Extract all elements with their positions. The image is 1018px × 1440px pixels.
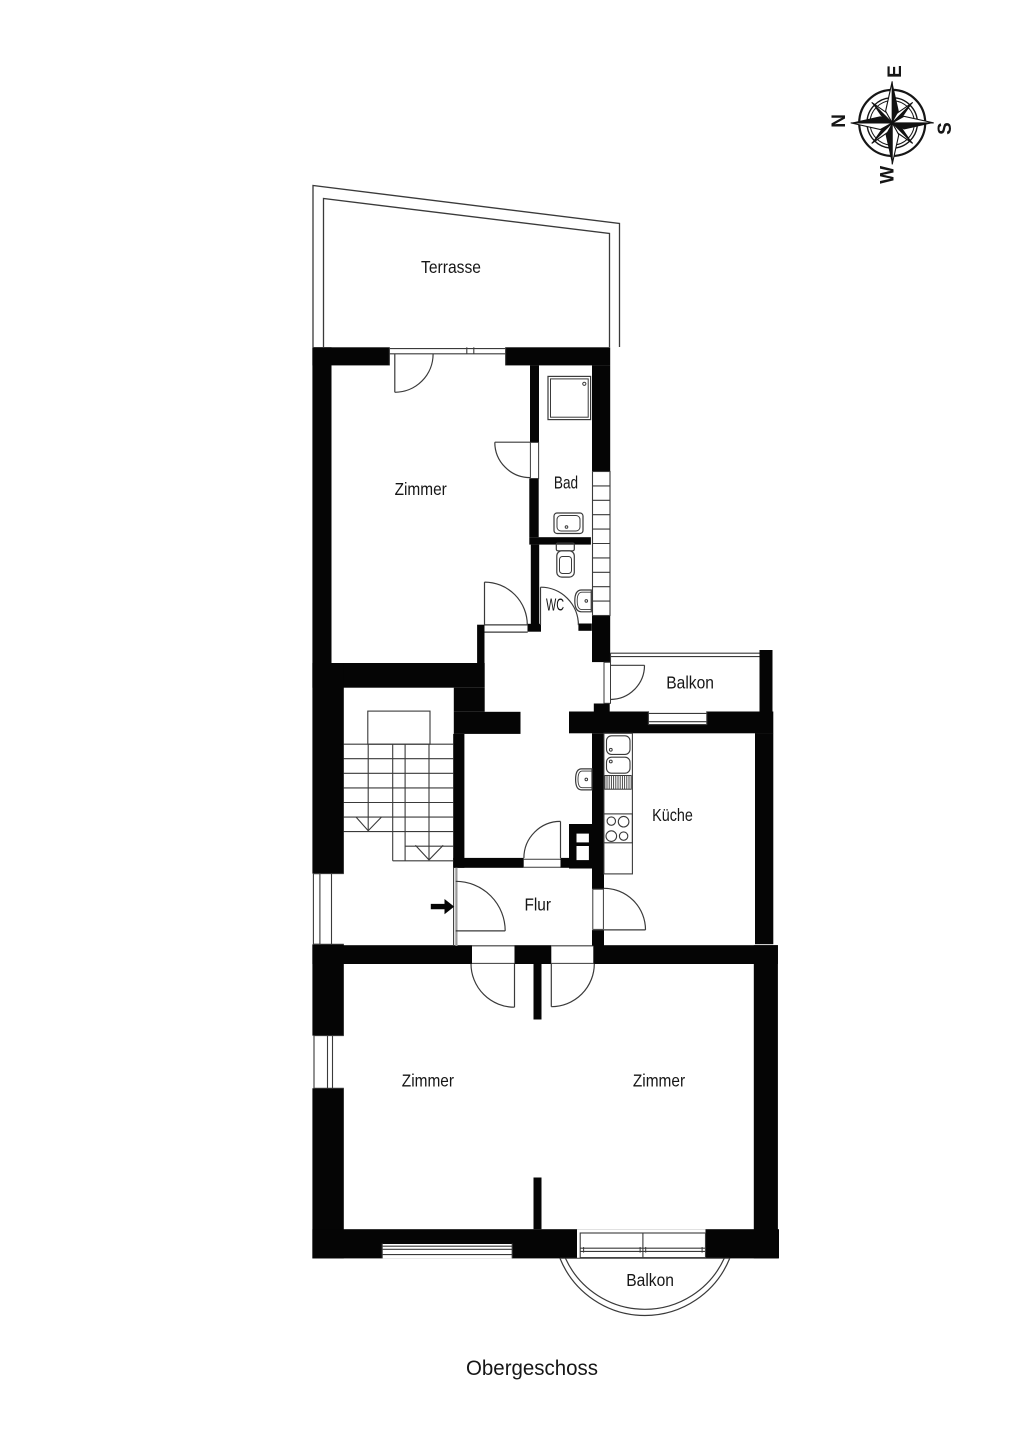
svg-text:Balkon: Balkon [626, 1270, 674, 1290]
svg-text:N: N [829, 114, 850, 128]
svg-text:E: E [885, 65, 906, 78]
svg-text:WC: WC [546, 595, 564, 615]
svg-text:Terrasse: Terrasse [421, 257, 481, 277]
svg-text:Zimmer: Zimmer [633, 1071, 685, 1091]
svg-text:S: S [935, 122, 956, 135]
svg-text:W: W [877, 166, 898, 184]
svg-text:Zimmer: Zimmer [402, 1071, 454, 1091]
svg-text:Küche: Küche [652, 805, 693, 825]
svg-text:Flur: Flur [524, 894, 551, 914]
svg-text:Bad: Bad [554, 473, 578, 493]
svg-text:Obergeschoss: Obergeschoss [466, 1357, 598, 1380]
svg-text:Balkon: Balkon [666, 672, 714, 692]
svg-text:Zimmer: Zimmer [395, 479, 447, 499]
